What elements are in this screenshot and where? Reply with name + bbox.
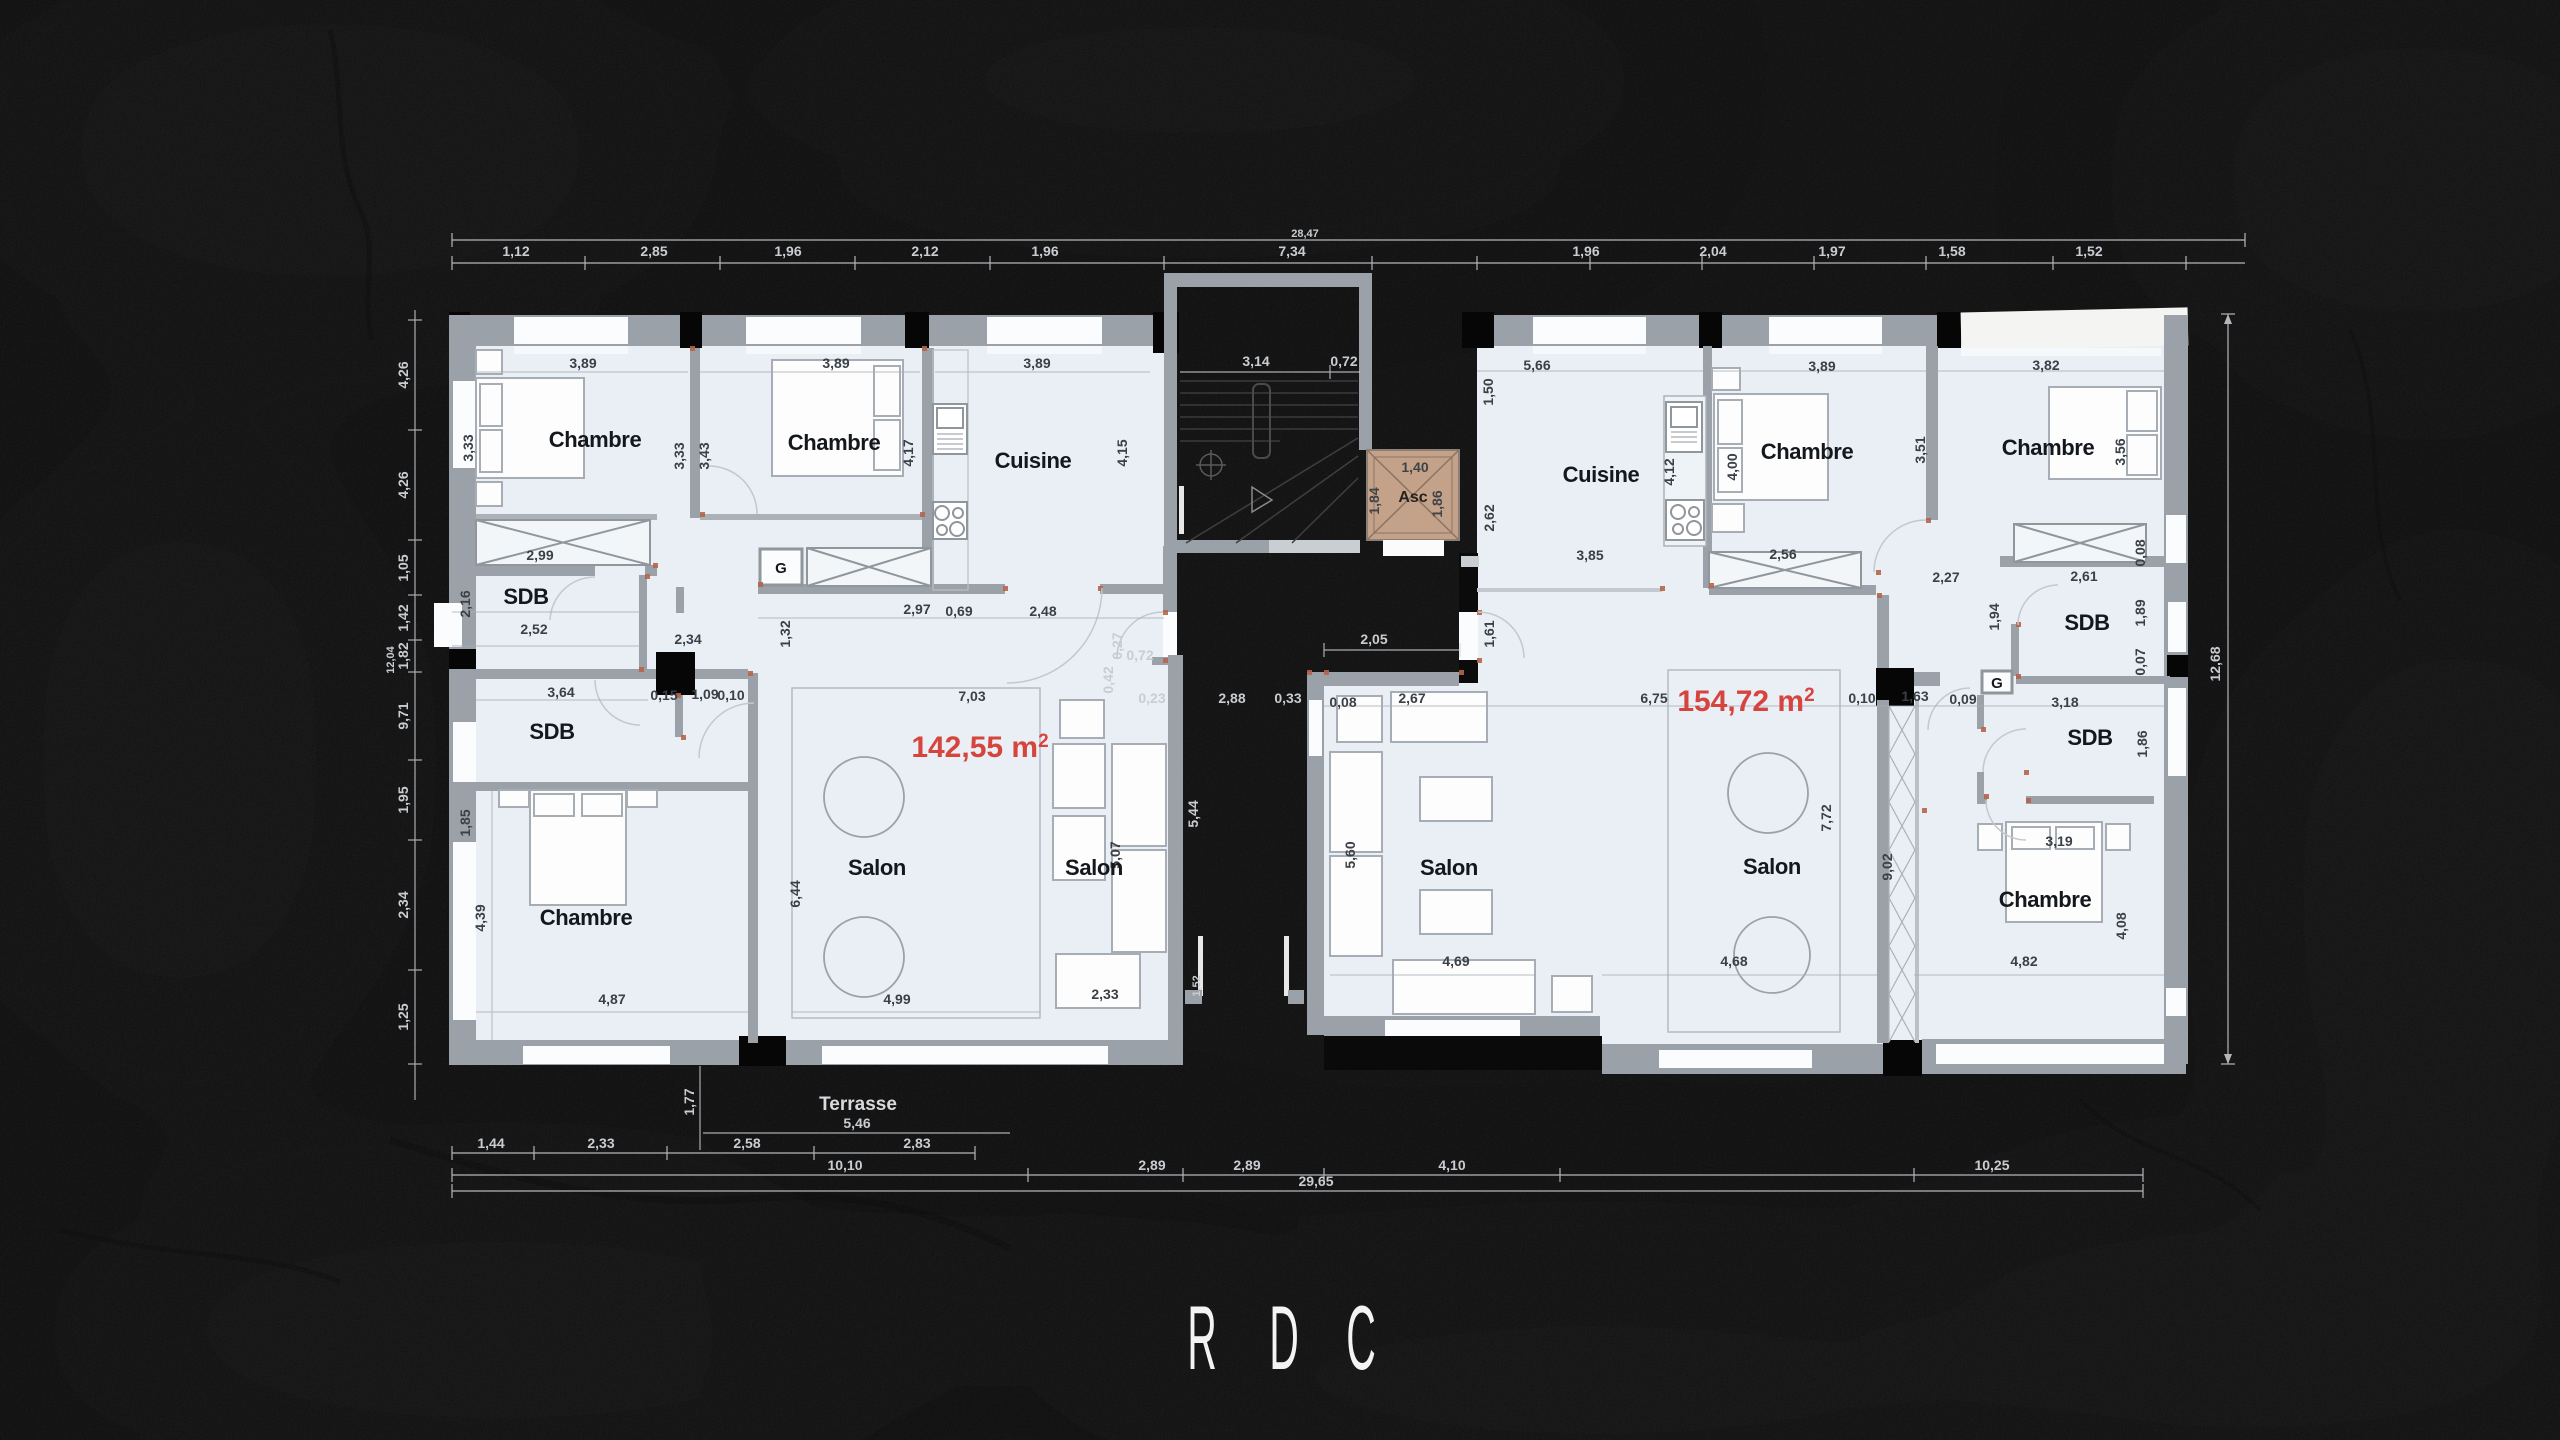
- svg-text:1,96: 1,96: [774, 243, 801, 259]
- svg-text:1,12: 1,12: [502, 243, 529, 259]
- svg-text:0,10: 0,10: [717, 687, 744, 703]
- svg-text:Chambre: Chambre: [1761, 439, 1854, 464]
- svg-text:1,50: 1,50: [1480, 378, 1496, 405]
- svg-text:2,33: 2,33: [1091, 986, 1118, 1002]
- svg-text:3,89: 3,89: [1808, 358, 1835, 374]
- svg-text:142,55 m2: 142,55 m2: [911, 731, 1048, 764]
- svg-text:2,16: 2,16: [457, 590, 473, 617]
- svg-text:0,23: 0,23: [1138, 690, 1165, 706]
- svg-text:1,52: 1,52: [1191, 975, 1203, 996]
- svg-text:2,34: 2,34: [674, 631, 701, 647]
- svg-text:6,75: 6,75: [1640, 690, 1667, 706]
- svg-text:2,05: 2,05: [1360, 631, 1387, 647]
- svg-text:0,72: 0,72: [1330, 353, 1357, 369]
- svg-text:2,62: 2,62: [1481, 504, 1497, 531]
- svg-text:4,39: 4,39: [472, 904, 488, 931]
- svg-text:4,69: 4,69: [1442, 953, 1469, 969]
- svg-text:4,87: 4,87: [598, 991, 625, 1007]
- svg-text:154,72 m2: 154,72 m2: [1677, 685, 1814, 718]
- svg-text:10,10: 10,10: [827, 1157, 862, 1173]
- svg-text:Asc: Asc: [1398, 489, 1427, 506]
- svg-text:R: R: [1187, 1286, 1217, 1388]
- svg-text:3,51: 3,51: [1912, 436, 1928, 463]
- svg-text:3,85: 3,85: [1576, 547, 1603, 563]
- svg-text:2,33: 2,33: [587, 1135, 614, 1151]
- svg-text:1,82: 1,82: [395, 642, 411, 669]
- svg-text:1,86: 1,86: [1429, 490, 1445, 517]
- svg-text:C: C: [1346, 1286, 1376, 1388]
- svg-text:SDB: SDB: [529, 719, 574, 744]
- svg-text:0,10: 0,10: [1848, 690, 1875, 706]
- svg-text:3,64: 3,64: [547, 684, 574, 700]
- svg-text:0,09: 0,09: [1949, 691, 1976, 707]
- svg-text:7,72: 7,72: [1818, 804, 1834, 831]
- svg-text:4,10: 4,10: [1438, 1157, 1465, 1173]
- svg-text:2,89: 2,89: [1233, 1157, 1260, 1173]
- svg-text:G: G: [1991, 675, 2003, 692]
- svg-text:2,04: 2,04: [1699, 243, 1726, 259]
- svg-text:2,85: 2,85: [640, 243, 667, 259]
- svg-text:1,94: 1,94: [1986, 603, 2002, 630]
- svg-text:4,26: 4,26: [395, 361, 411, 388]
- svg-text:2,99: 2,99: [526, 547, 553, 563]
- svg-text:1,32: 1,32: [777, 620, 793, 647]
- svg-text:1,44: 1,44: [477, 1135, 504, 1151]
- svg-text:0,69: 0,69: [945, 603, 972, 619]
- svg-text:2,48: 2,48: [1029, 603, 1056, 619]
- svg-text:10,25: 10,25: [1974, 1157, 2009, 1173]
- svg-text:1,05: 1,05: [395, 554, 411, 581]
- svg-text:SDB: SDB: [503, 584, 548, 609]
- svg-text:1,09: 1,09: [691, 686, 718, 702]
- svg-text:2,52: 2,52: [520, 621, 547, 637]
- svg-text:1,61: 1,61: [1481, 620, 1497, 647]
- svg-text:0,08: 0,08: [1329, 694, 1356, 710]
- svg-text:28,47: 28,47: [1291, 228, 1319, 240]
- svg-text:4,99: 4,99: [883, 991, 910, 1007]
- svg-text:Terrasse: Terrasse: [819, 1094, 897, 1115]
- svg-text:4,15: 4,15: [1114, 439, 1130, 466]
- svg-text:1,58: 1,58: [1938, 243, 1965, 259]
- svg-text:1,42: 1,42: [395, 604, 411, 631]
- svg-text:4,00: 4,00: [1724, 453, 1740, 480]
- svg-text:3,43: 3,43: [696, 442, 712, 469]
- svg-text:3,89: 3,89: [569, 355, 596, 371]
- svg-text:1,25: 1,25: [395, 1003, 411, 1030]
- svg-text:3,33: 3,33: [460, 434, 476, 461]
- svg-text:2,89: 2,89: [1138, 1157, 1165, 1173]
- svg-text:1,96: 1,96: [1031, 243, 1058, 259]
- svg-text:1,52: 1,52: [2075, 243, 2102, 259]
- svg-text:Chambre: Chambre: [549, 427, 642, 452]
- svg-text:3,82: 3,82: [2032, 357, 2059, 373]
- svg-text:Salon: Salon: [848, 855, 906, 880]
- svg-text:4,08: 4,08: [2113, 912, 2129, 939]
- svg-text:Chambre: Chambre: [2002, 435, 2095, 460]
- svg-text:1,97: 1,97: [1818, 243, 1845, 259]
- svg-text:4,17: 4,17: [900, 439, 916, 466]
- svg-text:0,33: 0,33: [1274, 690, 1301, 706]
- svg-text:4,26: 4,26: [395, 471, 411, 498]
- svg-text:Salon: Salon: [1420, 855, 1478, 880]
- svg-text:9,02: 9,02: [1879, 853, 1895, 880]
- svg-text:4,68: 4,68: [1720, 953, 1747, 969]
- svg-text:1,85: 1,85: [457, 809, 473, 836]
- svg-text:1,84: 1,84: [1366, 487, 1382, 514]
- svg-text:7,03: 7,03: [958, 688, 985, 704]
- svg-text:1,77: 1,77: [681, 1088, 697, 1115]
- svg-text:2,58: 2,58: [733, 1135, 760, 1151]
- svg-text:0,08: 0,08: [2132, 539, 2148, 566]
- svg-text:2,61: 2,61: [2070, 568, 2097, 584]
- svg-text:2,12: 2,12: [911, 243, 938, 259]
- svg-text:0,72: 0,72: [1126, 647, 1153, 663]
- svg-text:9,71: 9,71: [395, 702, 411, 729]
- svg-text:D: D: [1269, 1286, 1299, 1388]
- svg-text:0,15: 0,15: [650, 687, 677, 703]
- svg-text:3,33: 3,33: [671, 442, 687, 469]
- svg-text:Chambre: Chambre: [540, 905, 633, 930]
- svg-text:0,42: 0,42: [1100, 666, 1116, 693]
- svg-text:Chambre: Chambre: [1999, 887, 2092, 912]
- svg-text:2,83: 2,83: [903, 1135, 930, 1151]
- svg-text:3,14: 3,14: [1242, 353, 1269, 369]
- svg-text:1,95: 1,95: [395, 786, 411, 813]
- svg-text:Salon: Salon: [1743, 854, 1801, 879]
- svg-text:5,46: 5,46: [843, 1115, 870, 1131]
- svg-text:G: G: [775, 560, 787, 577]
- svg-text:4,12: 4,12: [1661, 458, 1677, 485]
- svg-text:Salon: Salon: [1065, 855, 1123, 880]
- svg-text:7,34: 7,34: [1278, 243, 1305, 259]
- svg-text:Chambre: Chambre: [788, 430, 881, 455]
- svg-text:0,07: 0,07: [2132, 648, 2148, 675]
- svg-text:5,44: 5,44: [1185, 800, 1201, 827]
- svg-text:1,89: 1,89: [2132, 599, 2148, 626]
- svg-text:12,68: 12,68: [2207, 646, 2223, 681]
- svg-text:29,65: 29,65: [1298, 1173, 1333, 1189]
- svg-text:Cuisine: Cuisine: [995, 448, 1072, 473]
- svg-text:SDB: SDB: [2064, 610, 2109, 635]
- svg-text:2,67: 2,67: [1398, 690, 1425, 706]
- svg-text:SDB: SDB: [2067, 725, 2112, 750]
- svg-text:12,04: 12,04: [385, 645, 397, 673]
- svg-text:1,40: 1,40: [1401, 459, 1428, 475]
- svg-text:2,88: 2,88: [1218, 690, 1245, 706]
- svg-text:3,89: 3,89: [1023, 355, 1050, 371]
- svg-text:0,27: 0,27: [1109, 632, 1125, 659]
- svg-text:3,19: 3,19: [2045, 833, 2072, 849]
- svg-text:5,66: 5,66: [1523, 357, 1550, 373]
- svg-text:Cuisine: Cuisine: [1563, 462, 1640, 487]
- svg-text:5,60: 5,60: [1342, 841, 1358, 868]
- svg-text:3,18: 3,18: [2051, 694, 2078, 710]
- svg-text:1,86: 1,86: [2134, 730, 2150, 757]
- svg-text:3,89: 3,89: [822, 355, 849, 371]
- svg-text:1,96: 1,96: [1572, 243, 1599, 259]
- svg-text:2,34: 2,34: [395, 891, 411, 918]
- svg-text:3,56: 3,56: [2112, 438, 2128, 465]
- svg-text:6,44: 6,44: [787, 880, 803, 907]
- svg-text:2,97: 2,97: [903, 601, 930, 617]
- svg-text:1,63: 1,63: [1901, 688, 1928, 704]
- svg-text:2,27: 2,27: [1932, 569, 1959, 585]
- svg-text:4,82: 4,82: [2010, 953, 2037, 969]
- svg-text:2,56: 2,56: [1769, 546, 1796, 562]
